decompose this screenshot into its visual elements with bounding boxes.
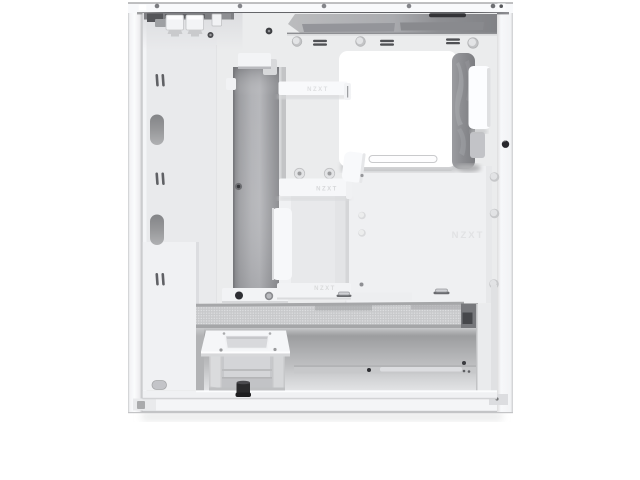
svg-text:NZXT: NZXT bbox=[452, 230, 485, 241]
svg-text:NZXT: NZXT bbox=[307, 87, 329, 93]
svg-text:NZXT: NZXT bbox=[316, 187, 338, 193]
svg-text:NZXT: NZXT bbox=[314, 286, 336, 292]
